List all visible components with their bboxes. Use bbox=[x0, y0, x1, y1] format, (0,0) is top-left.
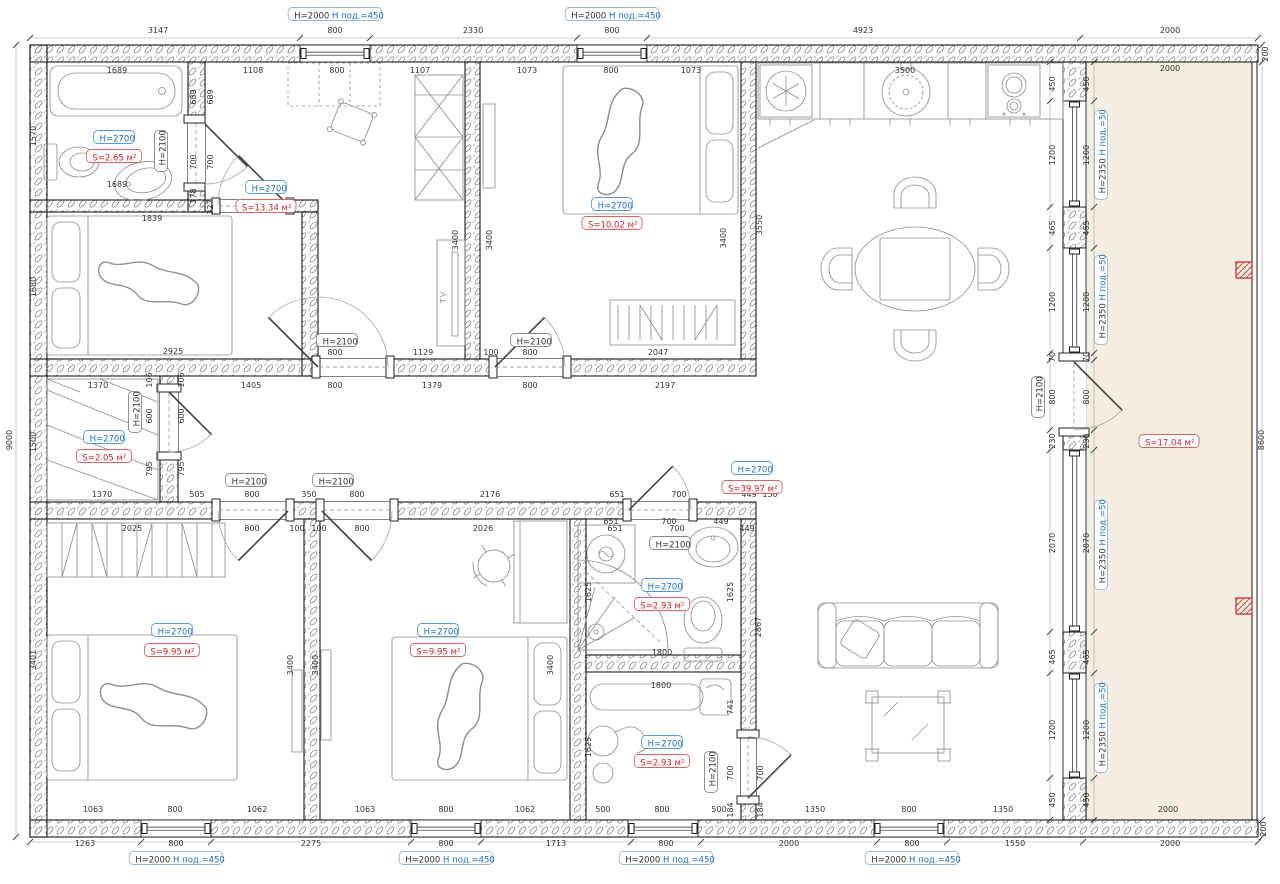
room-height-label: H=2700 bbox=[246, 181, 287, 195]
room-height-label: H=2700 bbox=[84, 431, 125, 445]
svg-text:H=2000 Н под.=450: H=2000 Н под.=450 bbox=[135, 856, 225, 866]
dimension-text: 1370 bbox=[92, 490, 112, 499]
dimension-text: 3400 bbox=[546, 655, 555, 675]
svg-text:S=2.05 м²: S=2.05 м² bbox=[82, 454, 126, 464]
svg-text:H=2350 Н под.=50: H=2350 Н под.=50 bbox=[1099, 682, 1109, 766]
dimension-text: 800 bbox=[1048, 389, 1057, 404]
svg-text:H=2000 Н под.=450: H=2000 Н под.=450 bbox=[625, 856, 715, 866]
dimension-text: 450 bbox=[1082, 792, 1091, 807]
dimension-text: 465 bbox=[1082, 220, 1091, 235]
dimension-text: 1200 bbox=[1082, 720, 1091, 740]
dimension-text: 449 bbox=[713, 517, 728, 526]
dimension-text: 3400 bbox=[451, 230, 460, 250]
dimension-text: 200 bbox=[1259, 821, 1268, 836]
dimension-text: 1405 bbox=[241, 381, 261, 390]
svg-text:H=2100: H=2100 bbox=[319, 478, 354, 488]
room-area-label: S=2.65 м² bbox=[86, 150, 141, 164]
dimension-text: 1107 bbox=[410, 66, 430, 75]
svg-text:H=2700: H=2700 bbox=[424, 628, 459, 638]
dimension-text: 450 bbox=[1082, 76, 1091, 91]
room-area-label: S=10.02 м² bbox=[582, 217, 642, 231]
dimension-text: 2047 bbox=[648, 348, 668, 357]
dimension-text: 1625 bbox=[584, 737, 593, 757]
dimension-text: 1370 bbox=[88, 381, 108, 390]
dimension-text: 1200 bbox=[1048, 720, 1057, 740]
tv-panel bbox=[321, 650, 331, 740]
window-label: H=2000 Н под.=450 bbox=[288, 8, 384, 22]
room-area-label: S=39.97 м² bbox=[722, 481, 782, 495]
dimension-text: 800 bbox=[329, 66, 344, 75]
dimension-text: 9000 bbox=[5, 430, 14, 450]
dimension-text: 1200 bbox=[1082, 292, 1091, 312]
bed bbox=[563, 66, 738, 214]
svg-text:H=2100: H=2100 bbox=[133, 391, 143, 426]
dimension-text: 1800 bbox=[651, 681, 671, 690]
room-height-label: H=2700 bbox=[642, 736, 683, 750]
wall-bedroom2-living bbox=[741, 62, 756, 359]
dimension-text: 1550 bbox=[1005, 839, 1025, 848]
sofa bbox=[818, 603, 998, 668]
svg-text:S=39.97 м²: S=39.97 м² bbox=[728, 485, 777, 495]
wardrobe bbox=[415, 75, 463, 200]
openings-layer bbox=[141, 45, 1122, 837]
dimension-text: 8600 bbox=[1257, 430, 1266, 450]
dimension-text: 500 bbox=[595, 805, 610, 814]
dimension-text: 1073 bbox=[681, 66, 701, 75]
dimension-text: 106 bbox=[177, 372, 186, 387]
dimension-text: 800 bbox=[244, 524, 259, 533]
dimension-text: 350 bbox=[301, 490, 316, 499]
svg-text:H=2000 Н под.=450: H=2000 Н под.=450 bbox=[871, 856, 961, 866]
coffee-table bbox=[866, 691, 950, 761]
dimension-text: 689 bbox=[206, 89, 215, 104]
dimension-text: 800 bbox=[904, 839, 919, 848]
dimension-text: 505 bbox=[189, 490, 204, 499]
dimension-text: 106 bbox=[145, 372, 154, 387]
dimension-text: 450 bbox=[1048, 76, 1057, 91]
tv-panel bbox=[483, 104, 495, 188]
floor-plan-canvas: TV 3147800233080049232000168911088001107… bbox=[0, 0, 1280, 884]
svg-text:H=2100: H=2100 bbox=[709, 751, 719, 786]
room-height-label: H=2700 bbox=[418, 624, 459, 638]
door-height-label: H=2100 bbox=[155, 130, 169, 171]
floor-plan-page: TV 3147800233080049232000168911088001107… bbox=[0, 0, 1280, 884]
dimension-text: 230 bbox=[1082, 433, 1091, 448]
room-area-label: S=2.93 м² bbox=[634, 598, 689, 612]
dimension-text: 1350 bbox=[805, 805, 825, 814]
terrace-window-label: H=2350 Н под.=50 bbox=[1095, 682, 1109, 772]
svg-text:H=2100: H=2100 bbox=[232, 478, 267, 488]
svg-text:H=2000 Н под.=450: H=2000 Н под.=450 bbox=[294, 12, 384, 22]
dimension-text: 800 bbox=[603, 66, 618, 75]
dimension-text: 1350 bbox=[993, 805, 1013, 814]
dimension-text: 2176 bbox=[480, 490, 500, 499]
dimension-text: 1108 bbox=[243, 66, 263, 75]
dimension-text: 700 bbox=[189, 154, 198, 169]
dimension-text: 70 bbox=[1048, 352, 1057, 362]
dimension-text: 800 bbox=[349, 490, 364, 499]
svg-text:H=2000 Н под.=450: H=2000 Н под.=450 bbox=[405, 856, 495, 866]
room-area-label: S=2.05 м² bbox=[76, 450, 131, 464]
door bbox=[184, 115, 247, 191]
window-label: H=2000 Н под.=450 bbox=[129, 852, 225, 866]
terrace-window-label: H=2350 Н под.=50 bbox=[1095, 109, 1109, 199]
window bbox=[411, 820, 481, 837]
dimension-text: 1625 bbox=[584, 582, 593, 602]
dimension-text: 800 bbox=[522, 381, 537, 390]
dimension-text: 100 bbox=[311, 524, 326, 533]
svg-text:H=2350 Н под.=50: H=2350 Н под.=50 bbox=[1099, 254, 1109, 338]
dimension-text: 465 bbox=[1048, 649, 1057, 664]
door-height-label: H=2100 bbox=[317, 334, 358, 348]
window-label: H=2000 Н под.=450 bbox=[399, 852, 495, 866]
dresser bbox=[610, 300, 735, 345]
svg-text:H=2700: H=2700 bbox=[648, 583, 683, 593]
dimension-text: 2000 bbox=[1160, 839, 1180, 848]
svg-text:H=2000 Н под.=450: H=2000 Н под.=450 bbox=[571, 12, 661, 22]
dimension-text: 795 bbox=[177, 461, 186, 476]
svg-text:S=13.34 м²: S=13.34 м² bbox=[242, 204, 291, 214]
dimension-text: 3400 bbox=[719, 228, 728, 248]
door-height-label: H=2100 bbox=[226, 474, 267, 488]
dimension-text: 327 bbox=[206, 199, 215, 214]
dimension-text: 800 bbox=[901, 805, 916, 814]
dimension-text: 1680 bbox=[29, 277, 38, 297]
dimension-text: 2026 bbox=[473, 524, 493, 533]
terrace-marker bbox=[1236, 262, 1252, 278]
dimension-text: 1200 bbox=[1082, 145, 1091, 165]
dimension-text: 800 bbox=[244, 490, 259, 499]
dimension-text: 651 bbox=[609, 490, 624, 499]
dimension-text: 2000 bbox=[1158, 805, 1178, 814]
room-height-label: H=2700 bbox=[592, 198, 633, 212]
desk bbox=[514, 521, 567, 623]
dimension-text: 184 bbox=[756, 802, 765, 817]
dimension-text: 600 bbox=[177, 408, 186, 423]
svg-text:H=2100: H=2100 bbox=[323, 338, 358, 348]
dimension-text: 800 bbox=[654, 805, 669, 814]
svg-text:S=2.93 м²: S=2.93 м² bbox=[640, 759, 684, 769]
dimension-text: 1500 bbox=[29, 432, 38, 452]
svg-text:S=2.65 м²: S=2.65 м² bbox=[92, 154, 136, 164]
dimension-text: 1200 bbox=[1048, 145, 1057, 165]
dimension-text: 1379 bbox=[422, 381, 442, 390]
dimension-text: 3500 bbox=[895, 66, 915, 75]
wall-bedroom1-right bbox=[302, 212, 318, 376]
dimension-text: 800 bbox=[1082, 389, 1091, 404]
stool bbox=[326, 98, 377, 146]
dimension-text: 1063 bbox=[83, 805, 103, 814]
window bbox=[577, 45, 647, 62]
dimension-text: 2070 bbox=[1048, 533, 1057, 553]
svg-text:H=2100: H=2100 bbox=[656, 541, 691, 551]
dimension-text: 3401 bbox=[29, 650, 38, 670]
tv-label: TV bbox=[439, 291, 448, 304]
wall-shower-laundry bbox=[586, 655, 741, 672]
svg-text:H=2700: H=2700 bbox=[100, 135, 135, 145]
dimension-text: 1263 bbox=[75, 839, 95, 848]
kitchen-counter bbox=[758, 63, 1063, 148]
dimension-text: 100 bbox=[483, 348, 498, 357]
wall-study-bedroom2 bbox=[465, 62, 480, 359]
dimension-text: 800 bbox=[438, 805, 453, 814]
office-chair bbox=[461, 533, 527, 599]
window bbox=[628, 820, 698, 837]
dimension-text: 2867 bbox=[754, 617, 763, 637]
dimension-text: 1129 bbox=[413, 348, 433, 357]
svg-text:S=17.04 м²: S=17.04 м² bbox=[1145, 439, 1194, 449]
dimension-text: 700 bbox=[756, 765, 765, 780]
door-height-label: H=2100 bbox=[650, 537, 691, 551]
dimension-text: 3147 bbox=[148, 26, 168, 35]
bed bbox=[47, 635, 237, 780]
dimension-text: 800 bbox=[167, 805, 182, 814]
svg-text:S=9.95 м²: S=9.95 м² bbox=[416, 648, 460, 658]
window-label: H=2000 Н под.=450 bbox=[565, 8, 661, 22]
room-height-label: H=2700 bbox=[94, 131, 135, 145]
dimension-text: 800 bbox=[658, 839, 673, 848]
dimension-text: 1839 bbox=[142, 214, 162, 223]
svg-text:H=2100: H=2100 bbox=[159, 130, 169, 165]
svg-text:H=2700: H=2700 bbox=[158, 628, 193, 638]
dimension-text: 1200 bbox=[1048, 292, 1057, 312]
dimension-text: 2025 bbox=[122, 524, 142, 533]
dimension-text: 600 bbox=[145, 408, 154, 423]
sink bbox=[688, 527, 738, 567]
svg-text:S=10.02 м²: S=10.02 м² bbox=[588, 221, 637, 231]
dimension-text: 700 bbox=[206, 154, 215, 169]
dimension-text: 800 bbox=[327, 381, 342, 390]
svg-text:S=2.93 м²: S=2.93 м² bbox=[640, 602, 684, 612]
dimension-text: 1625 bbox=[726, 582, 735, 602]
window bbox=[874, 820, 944, 837]
room-height-label: H=2700 bbox=[732, 462, 773, 476]
bed bbox=[392, 637, 567, 780]
dimension-text: 2330 bbox=[463, 26, 483, 35]
svg-text:S=9.95 м²: S=9.95 м² bbox=[150, 648, 194, 658]
dimension-text: 1713 bbox=[546, 839, 566, 848]
svg-text:H=2700: H=2700 bbox=[738, 466, 773, 476]
svg-text:H=2350 Н под.=50: H=2350 Н под.=50 bbox=[1099, 499, 1109, 583]
room-height-label: H=2700 bbox=[642, 579, 683, 593]
door-height-label: H=2100 bbox=[511, 334, 552, 348]
dimension-text: 70 bbox=[1082, 352, 1091, 362]
dimension-text: 700 bbox=[726, 765, 735, 780]
dimension-text: 800 bbox=[438, 839, 453, 848]
dimension-text: 465 bbox=[1082, 649, 1091, 664]
door-height-label: H=2100 bbox=[705, 751, 719, 792]
svg-text:H=2700: H=2700 bbox=[252, 185, 287, 195]
svg-text:H=2100: H=2100 bbox=[517, 338, 552, 348]
fridge bbox=[760, 65, 812, 117]
dimension-text: 1062 bbox=[515, 805, 535, 814]
dimension-text: 741 bbox=[726, 699, 735, 714]
dimension-text: 449 bbox=[739, 524, 754, 533]
window bbox=[141, 820, 211, 837]
bed bbox=[47, 216, 232, 355]
window-label: H=2000 Н под.=450 bbox=[865, 852, 961, 866]
dining-table bbox=[821, 177, 1009, 361]
dimension-text: 2000 bbox=[1160, 26, 1180, 35]
svg-text:H=2700: H=2700 bbox=[598, 202, 633, 212]
door-height-label: H=2100 bbox=[313, 474, 354, 488]
window-label: H=2000 Н под.=450 bbox=[619, 852, 715, 866]
dimension-text: 1689 bbox=[107, 180, 127, 189]
dimension-text: 800 bbox=[327, 348, 342, 357]
dimension-text: 465 bbox=[1048, 220, 1057, 235]
room-area-label: S=9.95 м² bbox=[410, 644, 465, 658]
dimension-text: 800 bbox=[168, 839, 183, 848]
dimension-text: 184 bbox=[726, 802, 735, 817]
dimension-text: 700 bbox=[671, 490, 686, 499]
dimension-text: 3400 bbox=[485, 230, 494, 250]
dimension-text: 2070 bbox=[1082, 533, 1091, 553]
dimension-text: 1063 bbox=[355, 805, 375, 814]
dimension-text: 2000 bbox=[779, 839, 799, 848]
terrace-window-label: H=2350 Н под.=50 bbox=[1095, 254, 1109, 344]
dimension-text: 800 bbox=[604, 26, 619, 35]
svg-text:H=2700: H=2700 bbox=[90, 435, 125, 445]
dimension-text: 178 bbox=[189, 188, 198, 203]
dimension-text: 1062 bbox=[247, 805, 267, 814]
dimension-text: 651 bbox=[603, 517, 618, 526]
dimension-text: 1570 bbox=[29, 126, 38, 146]
door-height-label: H=2100 bbox=[1032, 376, 1046, 417]
dimension-text: 500 bbox=[711, 805, 726, 814]
dimension-text: 1689 bbox=[107, 66, 127, 75]
svg-text:H=2100: H=2100 bbox=[1036, 376, 1046, 411]
dimension-text: 230 bbox=[1048, 433, 1057, 448]
room-area-label: S=9.95 м² bbox=[144, 644, 199, 658]
dimension-text: 3400 bbox=[286, 655, 295, 675]
dimension-text: 1073 bbox=[517, 66, 537, 75]
dimension-text: 800 bbox=[522, 348, 537, 357]
terrace-window-label: H=2350 Н под.=50 bbox=[1095, 499, 1109, 589]
door-height-label: H=2100 bbox=[129, 391, 143, 432]
dimension-text: 2275 bbox=[301, 839, 321, 848]
dimension-text: 450 bbox=[1048, 792, 1057, 807]
dimension-text: 2197 bbox=[655, 381, 675, 390]
dimension-text: 200 bbox=[1261, 46, 1270, 61]
dimension-text: 795 bbox=[145, 461, 154, 476]
window bbox=[300, 45, 370, 62]
dimension-text: 4923 bbox=[853, 26, 873, 35]
dimension-text: 800 bbox=[354, 524, 369, 533]
stove bbox=[988, 65, 1040, 117]
dimension-text: 1800 bbox=[652, 648, 672, 657]
dimension-text: 2925 bbox=[163, 347, 183, 356]
room-area-label: S=17.04 м² bbox=[1139, 435, 1199, 449]
room-area-label: S=13.34 м² bbox=[236, 200, 296, 214]
svg-text:H=2350 Н под.=50: H=2350 Н под.=50 bbox=[1099, 109, 1109, 193]
dimension-text: 2000 bbox=[1160, 64, 1180, 73]
room-height-label: H=2700 bbox=[152, 624, 193, 638]
dimension-text: 800 bbox=[327, 26, 342, 35]
terrace-marker bbox=[1236, 598, 1252, 614]
tv-panel bbox=[292, 670, 302, 752]
dimension-text: 3400 bbox=[311, 655, 320, 675]
dimension-text: 700 bbox=[661, 517, 676, 526]
dimension-text: 3550 bbox=[755, 215, 764, 235]
dimension-text: 100 bbox=[289, 524, 304, 533]
svg-text:H=2700: H=2700 bbox=[648, 740, 683, 750]
room-area-label: S=2.93 м² bbox=[634, 755, 689, 769]
dimension-text: 689 bbox=[189, 89, 198, 104]
